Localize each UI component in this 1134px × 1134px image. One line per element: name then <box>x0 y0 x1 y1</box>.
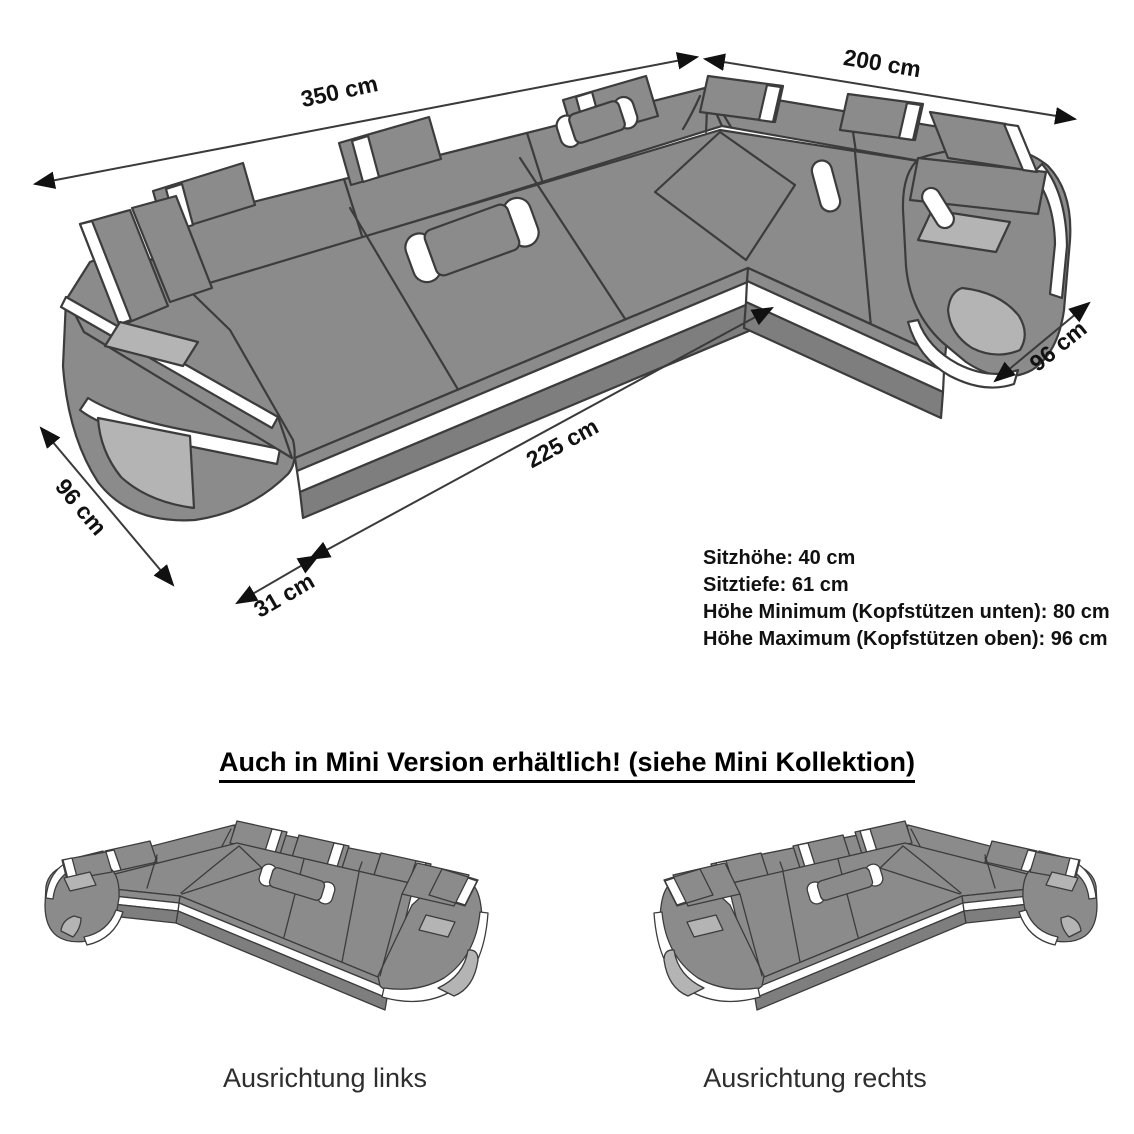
dimension-label: 200 cm <box>842 44 923 82</box>
caption-orientation-left: Ausrichtung links <box>105 1063 545 1094</box>
dimension-label: 350 cm <box>298 70 380 112</box>
spec-height-min: Höhe Minimum (Kopfstützen unten): 80 cm <box>703 599 1110 626</box>
caption-orientation-right: Ausrichtung rechts <box>595 1063 1035 1094</box>
spec-seat-height: Sitzhöhe: 40 cm <box>703 545 1110 572</box>
mini-version-heading: Auch in Mini Version erhältlich! (siehe … <box>0 747 1134 783</box>
spec-seat-depth: Sitztiefe: 61 cm <box>703 572 1110 599</box>
seat-surface <box>186 130 963 458</box>
mini-sofa-orientation-right <box>654 821 1097 1010</box>
dimension-arrow-armrest-width: 31 cm <box>237 556 319 623</box>
mini-version-heading-text: Auch in Mini Version erhältlich! (siehe … <box>219 747 915 783</box>
mini-sofa-orientation-left <box>45 821 488 1010</box>
product-dimension-sheet: 350 cm 200 cm 96 cm 225 cm 96 cm 31 cm S… <box>0 0 1134 1134</box>
spec-list: Sitzhöhe: 40 cm Sitztiefe: 61 cm Höhe Mi… <box>703 545 1110 653</box>
spec-height-max: Höhe Maximum (Kopfstützen oben): 96 cm <box>703 626 1110 653</box>
